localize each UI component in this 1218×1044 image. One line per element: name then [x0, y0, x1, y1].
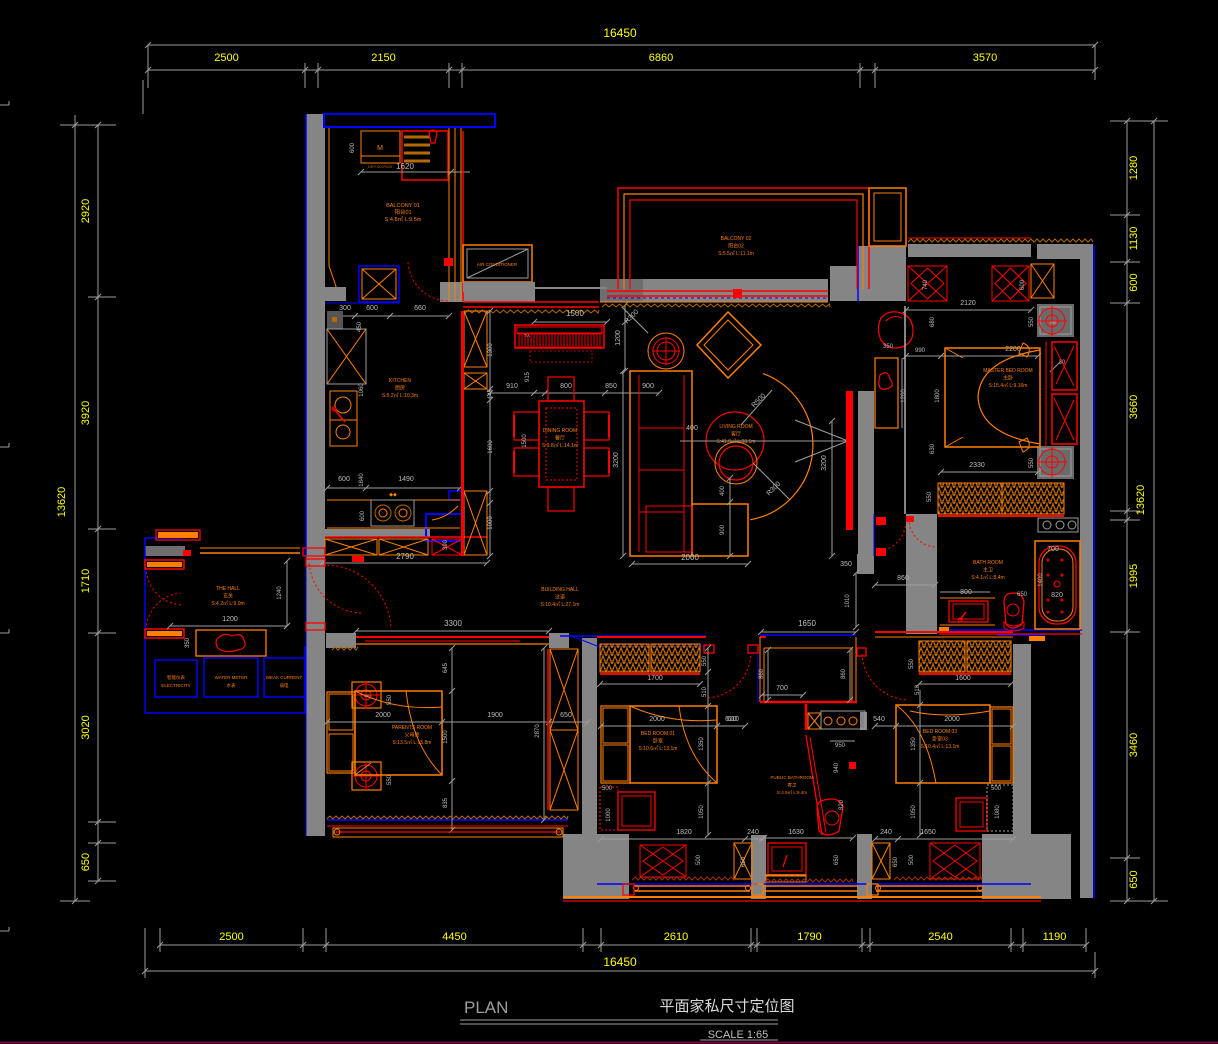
svg-text:KITCHEN: KITCHEN [389, 378, 411, 384]
svg-text:1500: 1500 [443, 730, 449, 744]
svg-text:1190: 1190 [1043, 931, 1067, 943]
svg-text:1700: 1700 [647, 675, 663, 682]
svg-text:S:9.8㎡ L:14.1m: S:9.8㎡ L:14.1m [542, 442, 578, 449]
svg-text:阳台02: 阳台02 [728, 243, 744, 250]
svg-text:BED ROOM 01: BED ROOM 01 [641, 731, 675, 737]
svg-text:S:5.5㎡ L:11.1m: S:5.5㎡ L:11.1m [718, 250, 754, 257]
svg-text:1840: 1840 [359, 473, 365, 487]
svg-text:AIR CONDITIONER: AIR CONDITIONER [477, 262, 518, 267]
svg-text:DRY:500*600: DRY:500*600 [368, 164, 393, 169]
svg-text:910: 910 [506, 383, 518, 390]
svg-text:1650: 1650 [920, 829, 936, 836]
svg-text:厨房: 厨房 [395, 385, 405, 392]
svg-text:610: 610 [727, 716, 739, 723]
svg-text:1630: 1630 [788, 829, 804, 836]
svg-text:1820: 1820 [676, 829, 692, 836]
svg-text:600: 600 [350, 142, 356, 153]
svg-text:PLAN: PLAN [464, 998, 508, 1017]
svg-text:弱电: 弱电 [280, 682, 289, 689]
svg-text:2000: 2000 [375, 712, 391, 719]
svg-text:PARENTS ROOM: PARENTS ROOM [392, 725, 432, 731]
svg-text:S:5.2㎡ L:10.3m: S:5.2㎡ L:10.3m [382, 392, 418, 399]
svg-text:240: 240 [747, 829, 759, 836]
svg-text:990: 990 [915, 348, 926, 354]
svg-text:16450: 16450 [603, 955, 637, 969]
svg-text:1050: 1050 [911, 805, 917, 819]
svg-text:1280: 1280 [1128, 156, 1140, 180]
svg-text:800: 800 [560, 383, 572, 390]
svg-text:350: 350 [185, 637, 191, 648]
svg-text:850: 850 [605, 383, 617, 390]
svg-text:2870: 2870 [535, 724, 541, 738]
svg-text:MASTER BED ROOM: MASTER BED ROOM [983, 368, 1032, 374]
svg-text:550: 550 [1029, 316, 1035, 327]
svg-text:1050: 1050 [699, 805, 705, 819]
svg-text:1000: 1000 [606, 808, 612, 822]
svg-text:WATER METER: WATER METER [215, 675, 248, 680]
svg-text:2500: 2500 [214, 52, 238, 64]
svg-text:550: 550 [1029, 457, 1035, 468]
svg-text:2000: 2000 [681, 553, 699, 562]
svg-text:3920: 3920 [80, 401, 92, 425]
svg-text:THE HALL: THE HALL [216, 586, 240, 592]
svg-text:6860: 6860 [649, 52, 673, 64]
svg-text:BATH ROOM: BATH ROOM [973, 560, 1003, 566]
svg-text:700: 700 [776, 685, 788, 692]
svg-text:2200: 2200 [1005, 346, 1021, 353]
svg-text:平面家私尺寸定位图: 平面家私尺寸定位图 [659, 998, 794, 1015]
svg-text:740: 740 [923, 279, 929, 290]
svg-text:13620: 13620 [1135, 485, 1147, 516]
svg-text:600: 600 [1128, 273, 1140, 291]
svg-text:卧室03: 卧室03 [932, 736, 948, 743]
svg-text:600: 600 [1020, 279, 1026, 290]
svg-text:2610: 2610 [664, 931, 688, 943]
svg-text:S:4.9㎡ L:9.4m: S:4.9㎡ L:9.4m [777, 789, 807, 795]
svg-text:1200: 1200 [615, 330, 622, 346]
svg-text:BED ROOM 03: BED ROOM 03 [923, 729, 957, 735]
svg-text:过道: 过道 [555, 594, 565, 601]
svg-text:1800: 1800 [935, 389, 941, 403]
svg-text:DINING ROOM: DINING ROOM [543, 428, 577, 434]
svg-text:3300: 3300 [444, 619, 462, 628]
svg-text:940: 940 [834, 762, 840, 773]
svg-text:客卫: 客卫 [788, 782, 797, 789]
svg-text:950: 950 [835, 743, 846, 749]
svg-text:智能仪表: 智能仪表 [167, 674, 185, 681]
svg-text:1400: 1400 [1038, 573, 1044, 587]
svg-text:680: 680 [930, 316, 936, 327]
svg-text:550: 550 [927, 491, 933, 502]
svg-text:3660: 3660 [1128, 395, 1140, 419]
svg-text:450: 450 [357, 321, 363, 332]
svg-text:500: 500 [991, 786, 1002, 792]
svg-text:主卧: 主卧 [1003, 375, 1013, 382]
svg-text:660: 660 [414, 305, 426, 312]
svg-text:2000: 2000 [944, 716, 960, 723]
svg-text:500: 500 [909, 854, 915, 865]
svg-text:1995: 1995 [1128, 564, 1140, 588]
svg-text:350: 350 [840, 561, 852, 568]
svg-text:1130: 1130 [1128, 227, 1140, 251]
svg-text:2500: 2500 [219, 931, 243, 943]
svg-text:600: 600 [360, 510, 366, 521]
svg-text:950: 950 [1050, 320, 1057, 325]
svg-text:390: 390 [443, 539, 449, 550]
svg-text:650: 650 [80, 853, 92, 871]
svg-text:13620: 13620 [56, 487, 68, 518]
svg-text:BALCONY 01: BALCONY 01 [386, 203, 420, 209]
svg-text:550: 550 [909, 658, 915, 669]
svg-text:650: 650 [1128, 870, 1140, 888]
svg-text:SCALE 1:65: SCALE 1:65 [708, 1029, 769, 1041]
svg-text:1200: 1200 [222, 616, 238, 623]
svg-text:BUILDING HALL: BUILDING HALL [541, 587, 579, 593]
svg-text:650: 650 [741, 856, 747, 867]
svg-text:4450: 4450 [442, 931, 466, 943]
svg-text:650: 650 [893, 856, 899, 867]
svg-text:1600: 1600 [488, 440, 494, 454]
svg-text:1710: 1710 [80, 569, 92, 593]
svg-text:S:10.6㎡ L:13.1m: S:10.6㎡ L:13.1m [639, 745, 678, 752]
svg-text:1620: 1620 [396, 162, 414, 171]
svg-text:835: 835 [443, 797, 449, 808]
svg-text:客厅: 客厅 [731, 431, 741, 438]
svg-text:600: 600 [338, 476, 350, 483]
svg-text:2000: 2000 [649, 716, 665, 723]
svg-text:2330: 2330 [969, 462, 985, 469]
svg-text:S:13.5㎡ L:15.8m: S:13.5㎡ L:15.8m [393, 739, 432, 746]
svg-text:3020: 3020 [80, 715, 92, 739]
svg-text:3200: 3200 [613, 452, 620, 468]
svg-text:510: 510 [702, 686, 708, 697]
svg-text:1500: 1500 [566, 309, 584, 318]
svg-text:阳台01: 阳台01 [394, 208, 411, 216]
svg-text:540: 540 [873, 716, 885, 723]
svg-text:2920: 2920 [80, 199, 92, 223]
svg-text:550: 550 [387, 774, 393, 785]
svg-text:240: 240 [880, 829, 892, 836]
svg-text:1650: 1650 [798, 619, 816, 628]
svg-text:2540: 2540 [928, 931, 952, 943]
svg-text:650: 650 [560, 712, 572, 719]
svg-text:卧室: 卧室 [653, 738, 663, 745]
svg-text:1000: 1000 [488, 516, 494, 530]
svg-text:S:10.4㎡ L:27.1m: S:10.4㎡ L:27.1m [541, 601, 580, 608]
svg-text:16450: 16450 [603, 26, 637, 40]
svg-text:820: 820 [1051, 592, 1063, 599]
svg-text:1240: 1240 [277, 586, 283, 600]
svg-text:S:10.4㎡ L:13.1m: S:10.4㎡ L:13.1m [921, 743, 960, 750]
svg-text:父母房: 父母房 [404, 732, 419, 739]
svg-text:550: 550 [702, 655, 708, 666]
svg-text:1490: 1490 [398, 476, 414, 483]
svg-text:3570: 3570 [973, 52, 997, 64]
svg-text:3460: 3460 [1128, 733, 1140, 757]
svg-text:900: 900 [720, 524, 726, 535]
svg-text:2120: 2120 [960, 300, 976, 307]
svg-text:M: M [377, 145, 383, 152]
svg-text:350: 350 [883, 344, 894, 350]
svg-text:S:4.8㎡ L:9.5m: S:4.8㎡ L:9.5m [385, 215, 422, 223]
svg-text:PUBLIC BATHROOM: PUBLIC BATHROOM [770, 775, 813, 780]
svg-text:1080: 1080 [995, 805, 1001, 819]
svg-text:1900: 1900 [487, 712, 503, 719]
svg-text:650: 650 [834, 854, 840, 865]
svg-text:650: 650 [1017, 592, 1028, 598]
svg-text:1350: 1350 [699, 737, 705, 751]
svg-text:400: 400 [686, 425, 698, 432]
svg-text:◆◆: ◆◆ [389, 492, 397, 498]
svg-text:水表: 水表 [227, 682, 236, 689]
svg-text:LIVING ROOM: LIVING ROOM [719, 424, 752, 430]
svg-text:300: 300 [339, 305, 351, 312]
svg-text:915: 915 [525, 371, 531, 382]
svg-text:1500: 1500 [522, 434, 528, 448]
svg-text:BALCONY 02: BALCONY 02 [721, 236, 752, 242]
svg-text:餐厅: 餐厅 [555, 435, 565, 442]
svg-text:600: 600 [366, 305, 378, 312]
svg-text:主卫: 主卫 [983, 567, 993, 574]
svg-text:1350: 1350 [911, 737, 917, 751]
svg-text:1790: 1790 [797, 931, 821, 943]
svg-text:ELECTRICITY: ELECTRICITY [161, 683, 190, 688]
svg-text:3200: 3200 [821, 455, 828, 471]
svg-text:玄关: 玄关 [223, 593, 233, 600]
svg-text:630: 630 [930, 443, 936, 454]
svg-text:700: 700 [1047, 546, 1059, 553]
svg-text:S:15.4㎡ L:9.16m: S:15.4㎡ L:9.16m [989, 382, 1028, 389]
svg-text:1060: 1060 [359, 383, 365, 397]
svg-text:2790: 2790 [396, 552, 414, 561]
svg-text:500: 500 [696, 854, 702, 865]
svg-text:860: 860 [759, 668, 765, 679]
svg-text:860: 860 [841, 668, 847, 679]
svg-text:S:4.1㎡ L:8.4m: S:4.1㎡ L:8.4m [971, 574, 1004, 581]
svg-text:1010: 1010 [845, 594, 851, 608]
svg-text:500: 500 [602, 786, 613, 792]
svg-text:860: 860 [897, 575, 909, 582]
svg-text:2150: 2150 [371, 52, 395, 64]
svg-text:S:4.2㎡ L:9.0m: S:4.2㎡ L:9.0m [211, 600, 244, 607]
svg-text:1600: 1600 [955, 675, 971, 682]
svg-text:900: 900 [642, 383, 654, 390]
svg-text:WEAK CURRENT: WEAK CURRENT [266, 675, 303, 680]
svg-text:645: 645 [443, 662, 449, 673]
svg-text:820: 820 [839, 799, 845, 810]
svg-text:1300: 1300 [488, 343, 494, 357]
svg-text:400: 400 [720, 485, 726, 496]
